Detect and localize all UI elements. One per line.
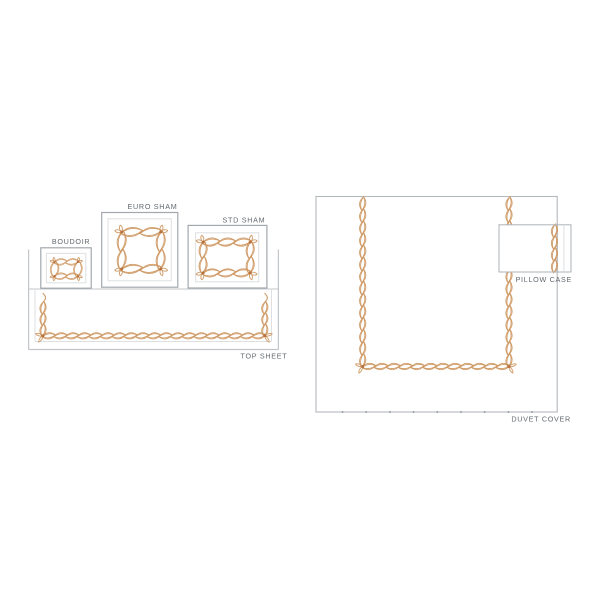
svg-text:DUVET COVER: DUVET COVER [511, 414, 571, 423]
svg-text:BOUDOIR: BOUDOIR [52, 237, 90, 246]
svg-text:TOP SHEET: TOP SHEET [241, 352, 288, 361]
svg-text:STD SHAM: STD SHAM [223, 215, 266, 224]
svg-text:PILLOW CASE: PILLOW CASE [516, 275, 572, 284]
svg-text:EURO SHAM: EURO SHAM [128, 202, 178, 211]
